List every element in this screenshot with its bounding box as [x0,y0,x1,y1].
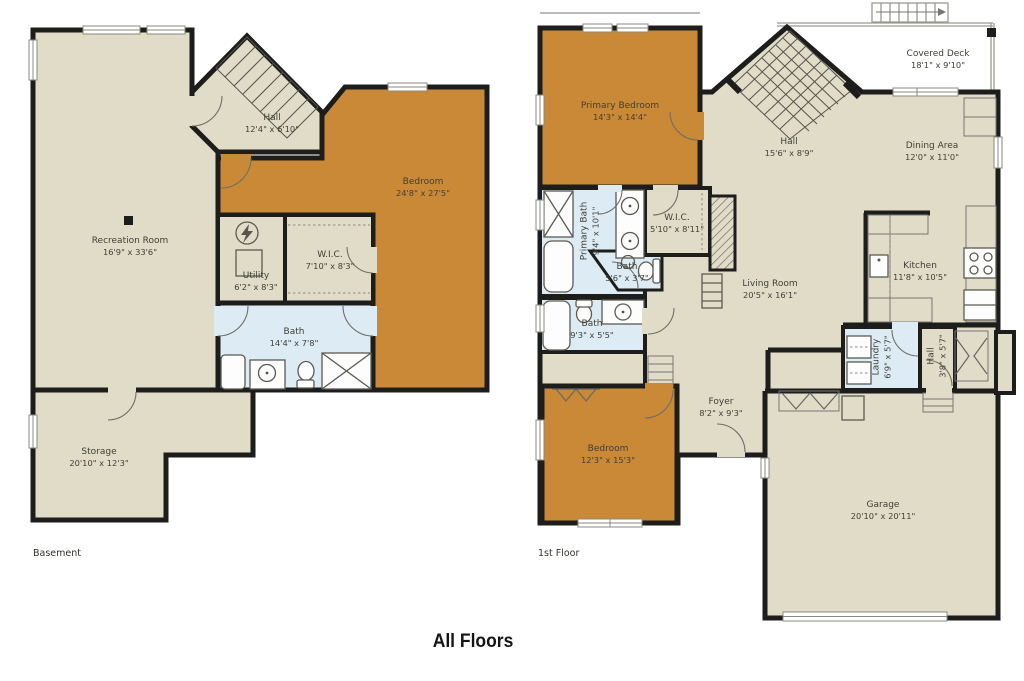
kitchen-sink-icon [870,255,888,277]
floorplan-drawing [0,0,1024,681]
garage-door [783,612,947,621]
room-label-utility: Utility 6'2" x 8'3" [234,271,278,292]
room-label-primary-bath: Primary Bath 9'4" x 10'1" [580,202,601,261]
room-label-first-bedroom: Bedroom 12'3" x 15'3" [581,444,635,465]
recreation-room-shape [33,30,218,390]
room-label-storage: Storage 20'10" x 12'3" [69,447,128,468]
toilet-icon [298,362,314,381]
room-label-dining: Dining Area 12'0" x 11'0" [905,141,959,162]
storage-room-shape [33,390,253,520]
stairwell-hatch [710,196,735,270]
room-label-garage: Garage 20'10" x 20'11" [851,500,916,521]
room-label-basement-bath: Bath 14'4" x 7'8" [270,327,319,348]
basement-hall-shape [192,36,322,152]
room-label-kitchen: Kitchen 11'8" x 10'5" [893,261,947,282]
room-label-first-bath: Bath 9'3" x 5'5" [570,319,614,340]
room-label-first-wic: W.I.C. 5'10" x 8'11" [650,213,704,234]
room-label-basement-hall: Hall 12'4" x 6'10" [245,113,299,134]
room-label-primary-bedroom: Primary Bedroom 14'3" x 14'4" [581,101,659,122]
tub-icon [221,355,245,389]
room-label-covered-deck: Covered Deck 18'1" x 9'10" [907,49,970,70]
floor-plan-page: Recreation Room 16'9" x 33'6" Hall 12'4"… [0,0,1024,681]
bathtub-icon [544,241,573,292]
deck-post-icon [987,28,996,37]
room-label-first-hall: Hall 15'6" x 8'9" [765,137,814,158]
rear-bumpout-shape [996,332,1014,393]
room-label-living: Living Room 20'5" x 16'1" [742,279,797,300]
room-label-laundry: Laundry 6'9" x 5'7" [872,335,893,379]
stove-icon [964,248,996,278]
room-label-basement-bedroom: Bedroom 24'8" x 27'5" [396,177,450,198]
room-label-small-hall: Hall 3'8" x 5'7" [927,334,948,378]
room-label-small-bath: Bath 5'6" x 3'7" [605,262,649,283]
room-label-basement-wic: W.I.C. 7'10" x 8'3" [306,250,355,271]
room-label-recreation: Recreation Room 16'9" x 33'6" [92,236,169,257]
bathtub-icon [543,301,570,350]
room-label-foyer: Foyer 8'2" x 9'3" [699,397,743,418]
page-title: All Floors [433,631,514,653]
deck-stairs-icon [872,3,948,22]
refrigerator-icon [964,290,996,320]
support-column-icon [124,216,133,225]
floor-label-basement: Basement [33,548,81,559]
floor-label-first: 1st Floor [538,548,579,559]
first-floor-plan [536,3,1014,621]
